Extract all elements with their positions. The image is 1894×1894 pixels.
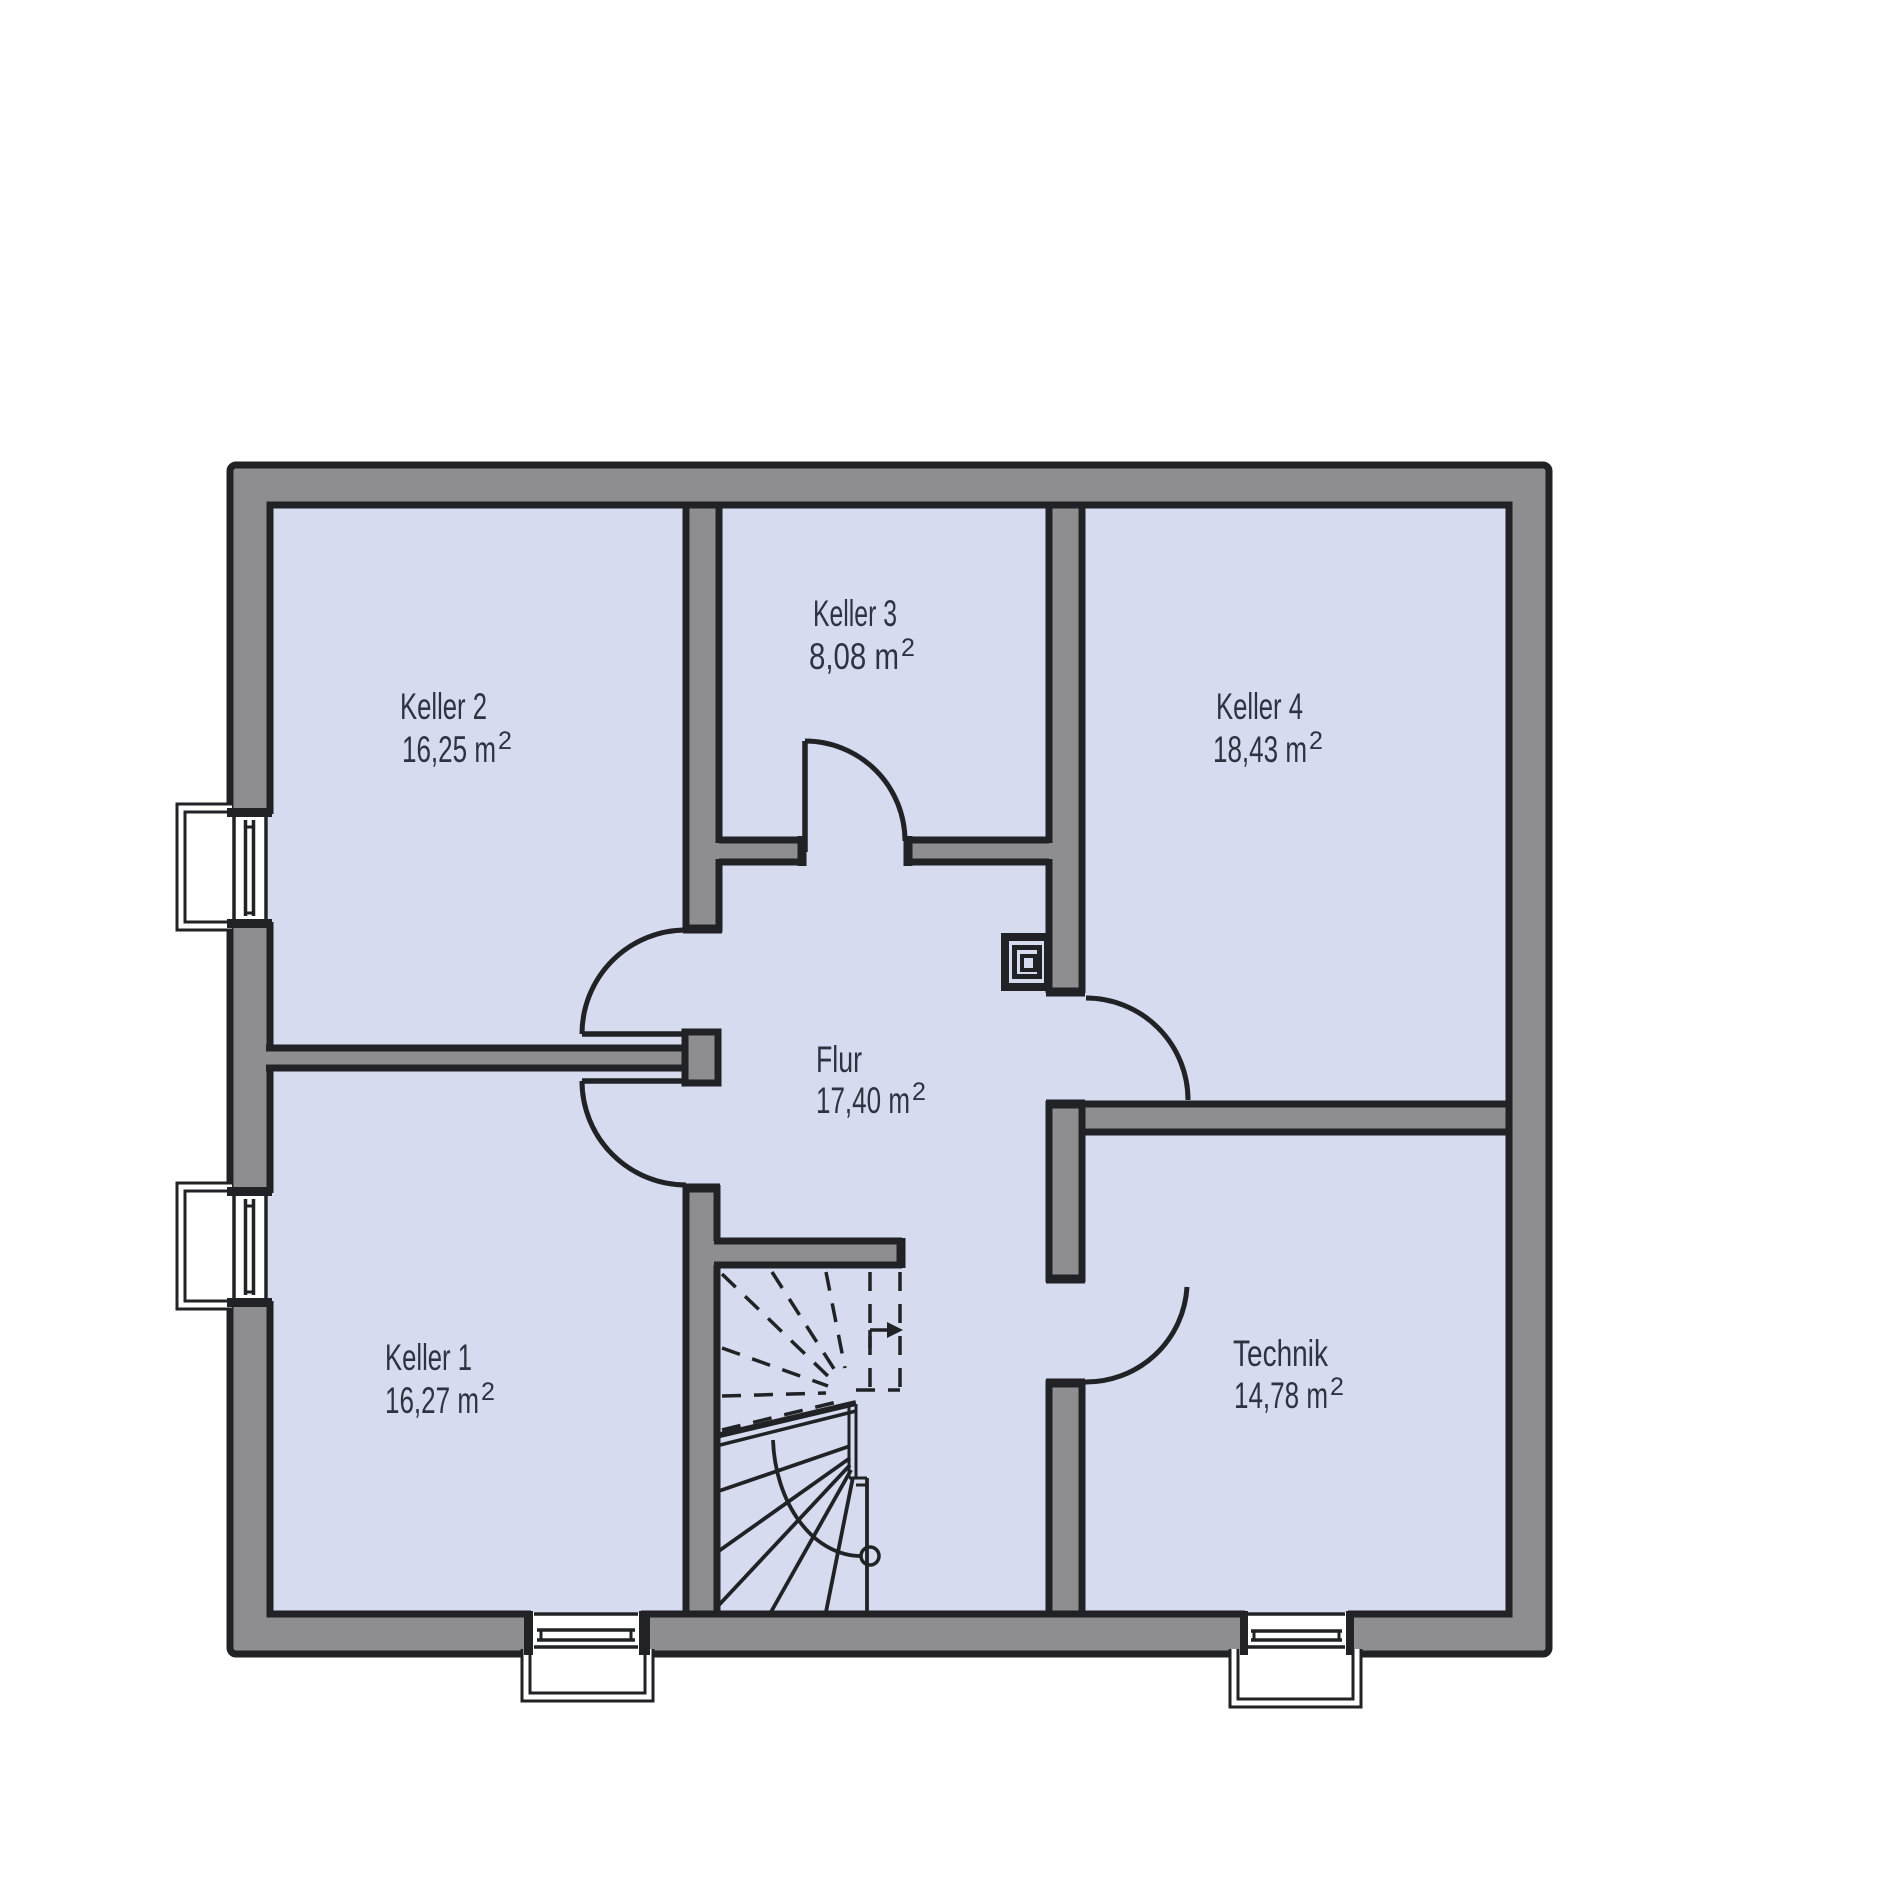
svg-text:Keller 3: Keller 3 [813, 593, 897, 634]
svg-text:2: 2 [481, 1378, 495, 1406]
svg-text:8,08 m: 8,08 m [809, 636, 899, 677]
svg-text:Keller 1: Keller 1 [385, 1337, 472, 1378]
svg-text:2: 2 [1330, 1373, 1344, 1401]
svg-text:16,25 m: 16,25 m [402, 729, 496, 770]
svg-text:14,78 m: 14,78 m [1234, 1375, 1328, 1416]
svg-text:18,43 m: 18,43 m [1213, 729, 1307, 770]
svg-text:Technik: Technik [1233, 1333, 1328, 1374]
svg-text:Keller 4: Keller 4 [1216, 686, 1303, 727]
svg-text:2: 2 [912, 1078, 926, 1106]
svg-text:16,27 m: 16,27 m [385, 1380, 479, 1421]
svg-text:2: 2 [1309, 727, 1323, 755]
svg-text:2: 2 [901, 634, 915, 662]
svg-text:Flur: Flur [816, 1039, 862, 1080]
svg-text:Keller 2: Keller 2 [400, 686, 487, 727]
svg-text:17,40 m: 17,40 m [816, 1080, 910, 1121]
svg-text:2: 2 [498, 727, 512, 755]
